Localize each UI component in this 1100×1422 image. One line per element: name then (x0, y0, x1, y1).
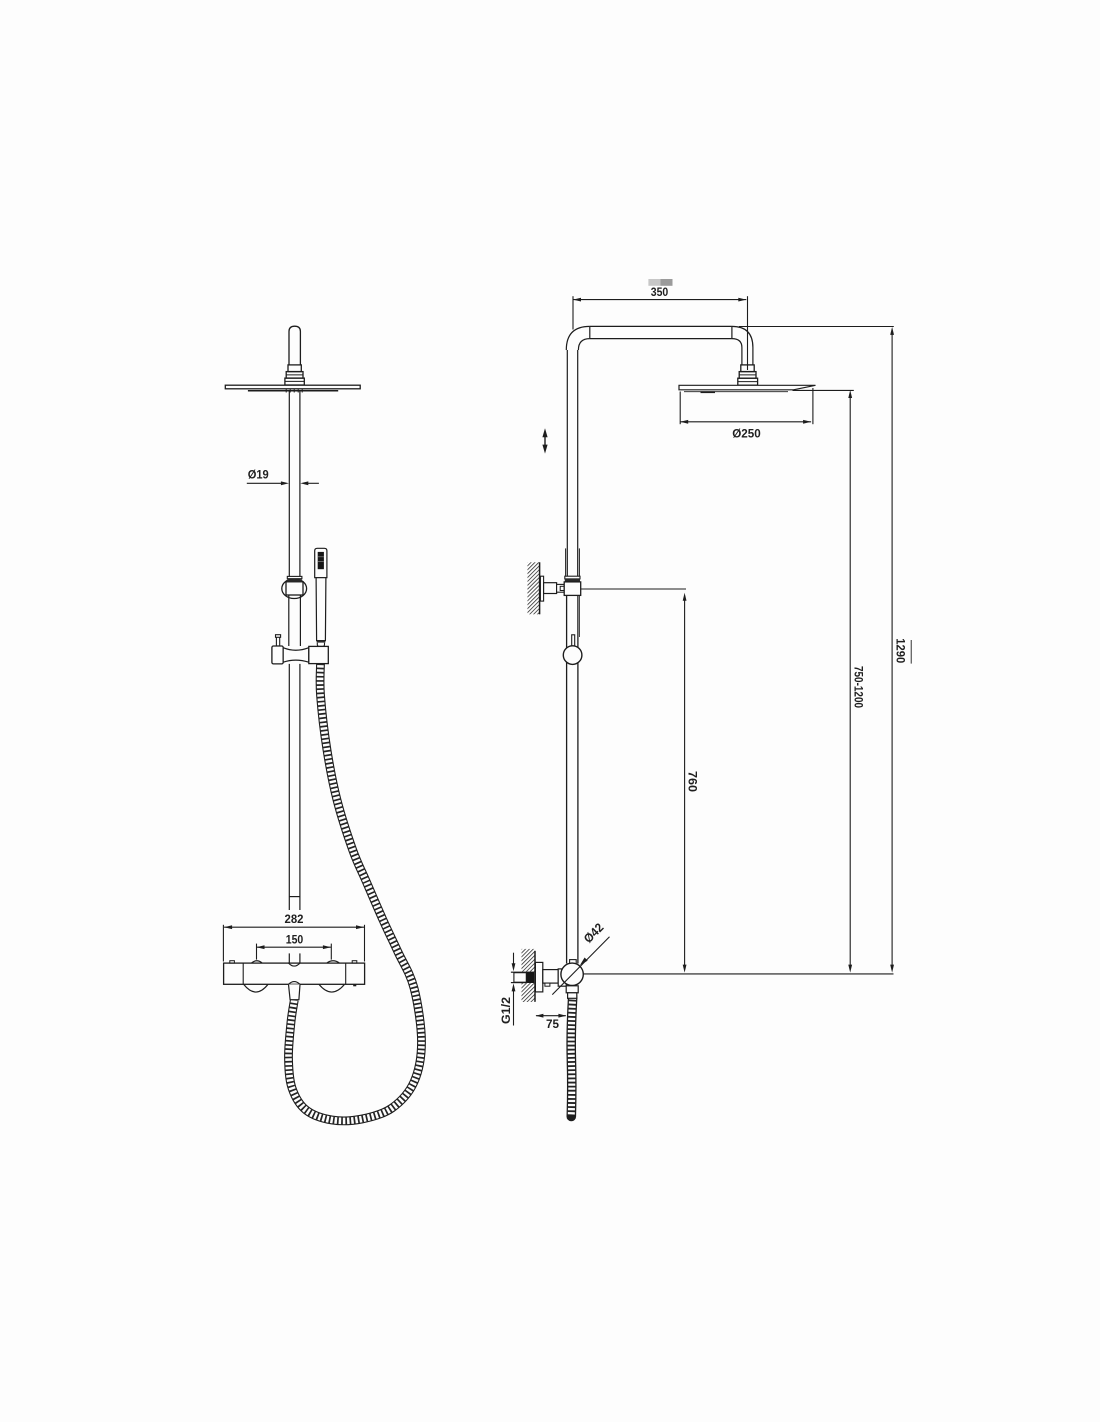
svg-text:Ø42: Ø42 (581, 920, 607, 946)
svg-text:Ø19: Ø19 (248, 468, 269, 482)
svg-text:G1/2: G1/2 (499, 997, 513, 1024)
svg-text:750-1200: 750-1200 (851, 666, 865, 708)
svg-text:760: 760 (686, 771, 700, 792)
svg-text:282: 282 (285, 912, 304, 926)
svg-text:75: 75 (546, 1017, 559, 1031)
svg-text:150: 150 (286, 933, 304, 947)
svg-text:Ø250: Ø250 (732, 426, 761, 440)
svg-text:350: 350 (651, 285, 669, 299)
svg-text:1290: 1290 (894, 638, 908, 663)
